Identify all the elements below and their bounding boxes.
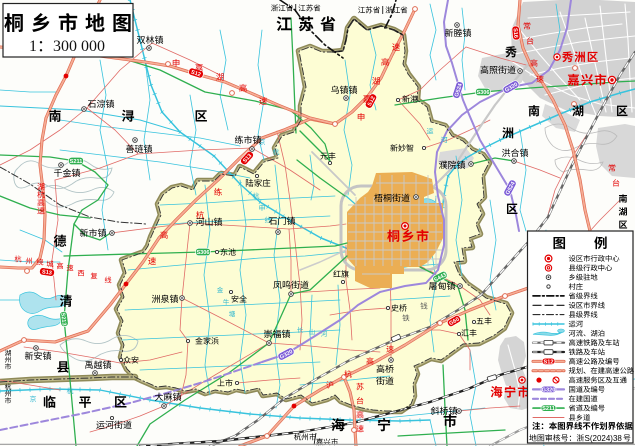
svg-text:1：300 000: 1：300 000 xyxy=(29,38,105,55)
svg-text:S12: S12 xyxy=(544,359,554,365)
svg-text:S211: S211 xyxy=(542,406,555,412)
svg-text:S306: S306 xyxy=(476,90,489,96)
svg-text:G320: G320 xyxy=(542,387,556,393)
svg-text:S306: S306 xyxy=(196,250,209,256)
svg-text:S(2024)38: S(2024)38 xyxy=(585,434,623,443)
svg-text:S211: S211 xyxy=(70,159,83,165)
svg-text:S16: S16 xyxy=(512,28,519,38)
